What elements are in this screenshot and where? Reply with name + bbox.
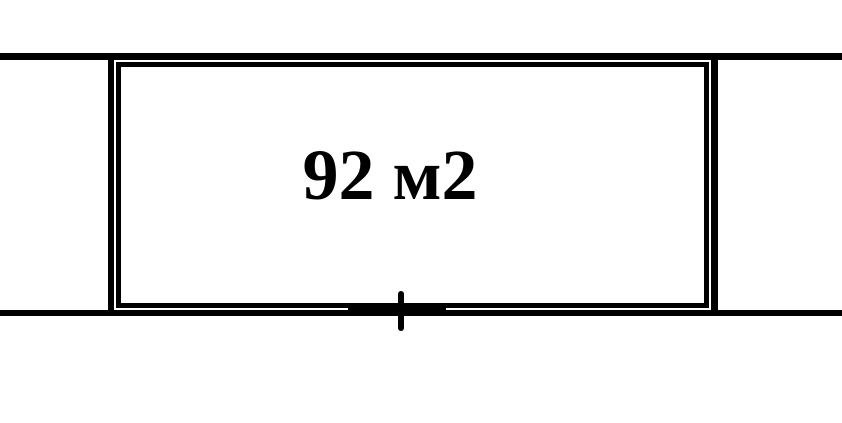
opening-center-tick [398,291,404,331]
room-outer-wall [108,53,718,316]
floor-plan: 92 м2 [0,0,842,423]
room-inner-wall-line [116,62,709,308]
wall-opening-marker [348,304,446,316]
